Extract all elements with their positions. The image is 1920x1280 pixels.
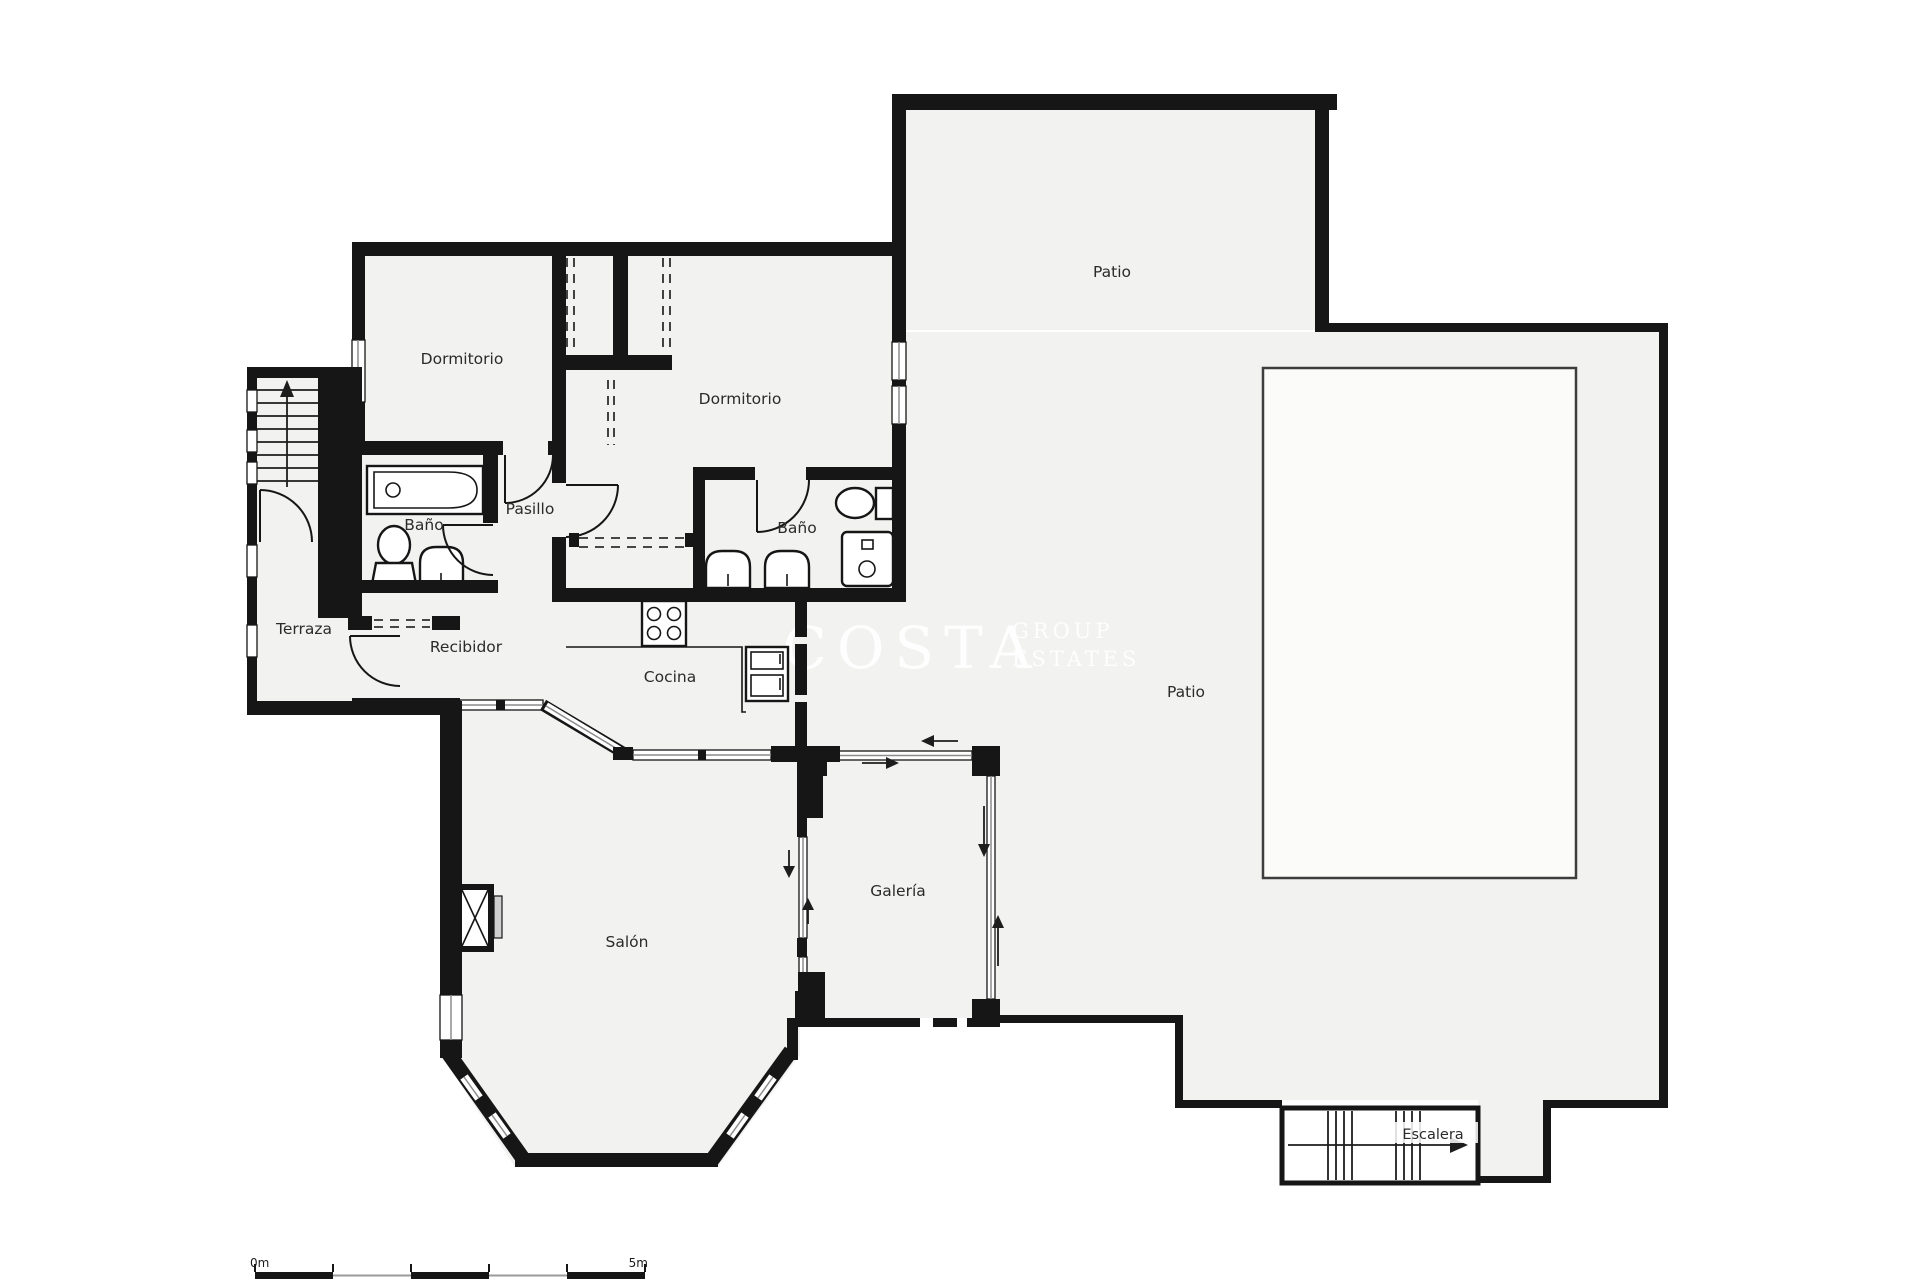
pool bbox=[1263, 368, 1576, 878]
stairs-lower: Escalera bbox=[1282, 1108, 1478, 1183]
fridge-icon bbox=[746, 647, 788, 701]
bathtub-icon bbox=[367, 466, 483, 514]
room-label-salon: Salón bbox=[606, 933, 649, 951]
room-label-patio-top: Patio bbox=[1093, 263, 1131, 281]
sink-right-2-icon bbox=[765, 551, 809, 588]
galeria-glass-right bbox=[987, 776, 995, 999]
room-label-dormitorio-right: Dormitorio bbox=[699, 390, 782, 408]
toilet-right-icon bbox=[836, 488, 893, 519]
window-band-recibidor bbox=[460, 700, 543, 710]
room-label-dormitorio-left: Dormitorio bbox=[421, 350, 504, 368]
scale-bar: 0m 5m bbox=[250, 1256, 648, 1279]
galeria-glass-left bbox=[799, 837, 807, 993]
floorplan-canvas: COSTA GROUP ESTATES bbox=[0, 0, 1920, 1280]
stove-icon bbox=[642, 601, 686, 646]
bidet-icon bbox=[842, 532, 893, 586]
room-label-patio-main: Patio bbox=[1167, 683, 1205, 701]
room-label-recibidor: Recibidor bbox=[430, 638, 503, 656]
sink-right-1-icon bbox=[706, 551, 750, 588]
scale-start-label: 0m bbox=[250, 1256, 269, 1270]
watermark-primary: COSTA bbox=[782, 614, 1041, 682]
room-label-cocina: Cocina bbox=[644, 668, 696, 686]
watermark-tertiary: ESTATES bbox=[1012, 647, 1140, 671]
room-label-bano-left: Baño bbox=[404, 516, 443, 534]
room-label-bano-right: Baño bbox=[777, 519, 816, 537]
room-label-galeria: Galería bbox=[870, 882, 926, 900]
floor-patio-top bbox=[906, 110, 1315, 330]
floorplan-page: COSTA GROUP ESTATES bbox=[0, 0, 1920, 1280]
sink-left-icon bbox=[420, 547, 463, 584]
floor-recibidor-cocina bbox=[352, 593, 805, 712]
room-label-terraza: Terraza bbox=[275, 620, 332, 638]
watermark-secondary: GROUP bbox=[1012, 619, 1114, 643]
window-band-salon bbox=[633, 750, 771, 760]
galeria-glass-top bbox=[827, 751, 972, 760]
room-label-pasillo: Pasillo bbox=[506, 500, 555, 518]
room-label-escalera: Escalera bbox=[1402, 1127, 1463, 1143]
